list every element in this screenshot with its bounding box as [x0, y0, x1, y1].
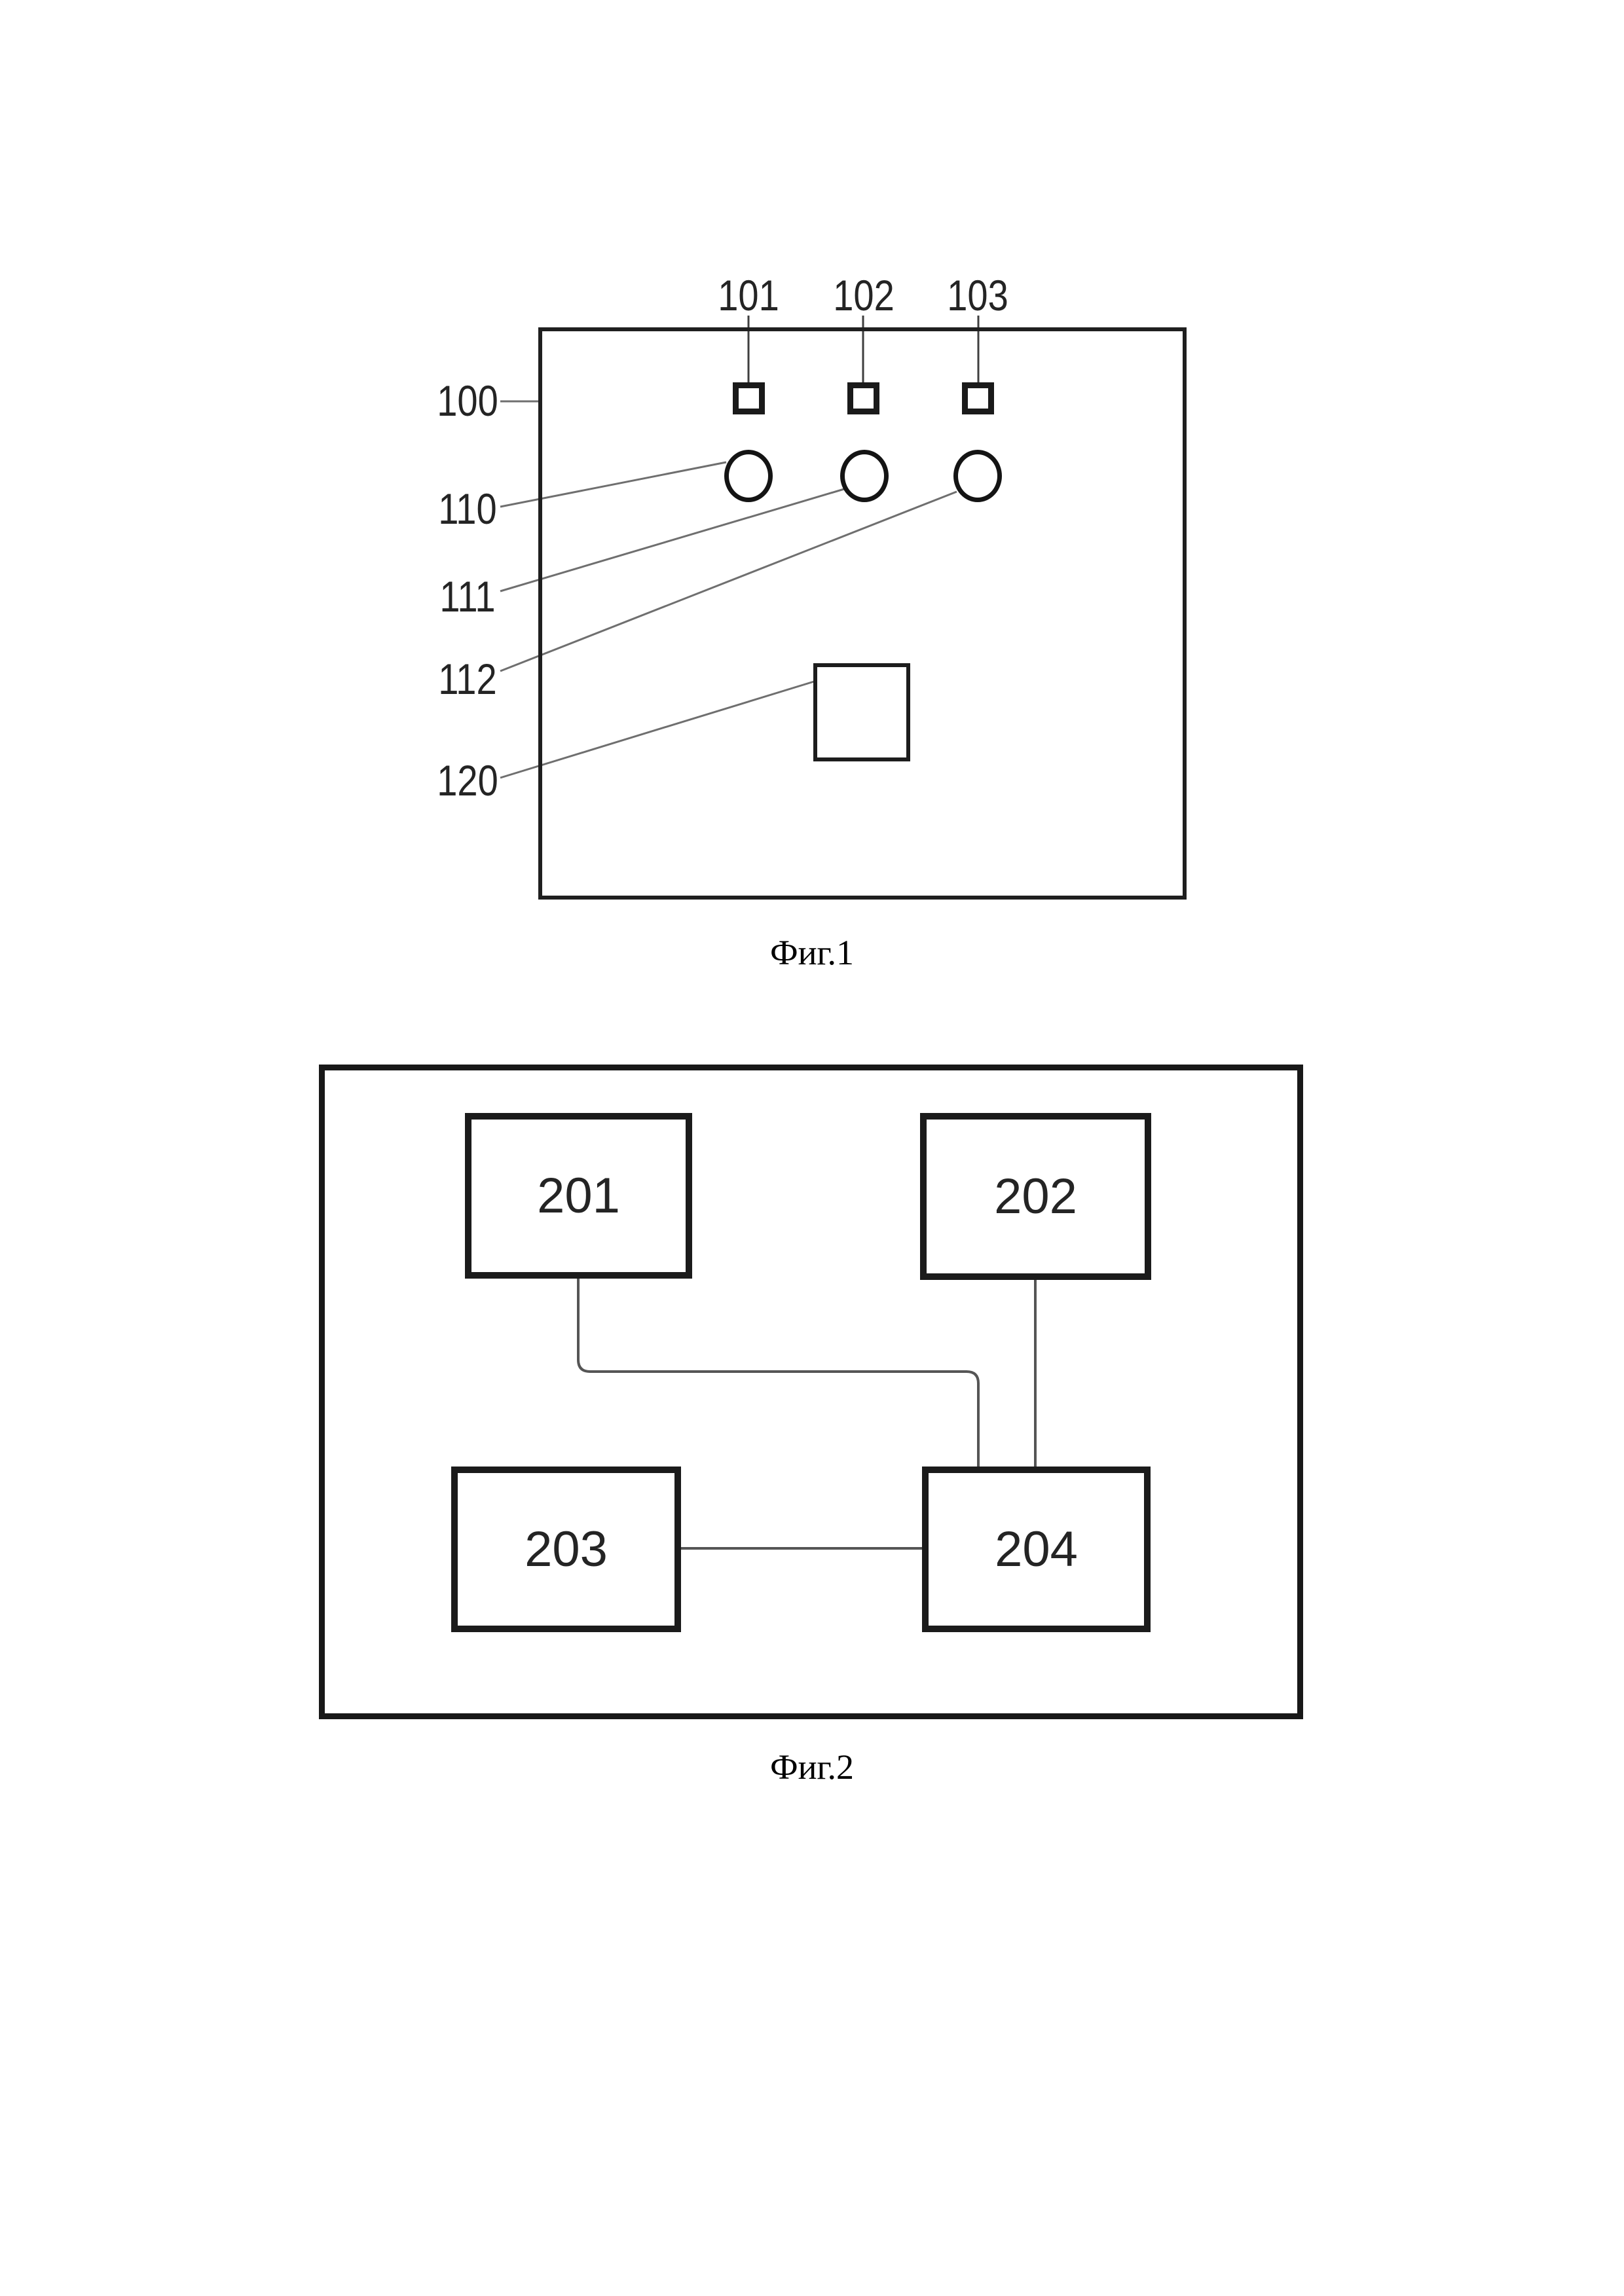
block-203: 203 [451, 1467, 681, 1632]
indicator-circle-111 [840, 450, 889, 502]
ref-label-101: 101 [712, 274, 785, 317]
block-202-label: 202 [994, 1168, 1077, 1225]
module-square-120 [813, 663, 910, 761]
ref-label-111: 111 [432, 575, 504, 618]
block-201: 201 [465, 1113, 692, 1279]
block-204-label: 204 [995, 1521, 1078, 1578]
fig1-caption: Фиг.1 [681, 934, 943, 972]
ref-label-120: 120 [432, 759, 504, 802]
port-square-101 [733, 382, 765, 414]
fig2-caption: Фиг.2 [681, 1748, 943, 1786]
ref-label-103: 103 [942, 274, 1014, 317]
block-202: 202 [920, 1113, 1151, 1280]
block-201-label: 201 [537, 1167, 620, 1224]
indicator-circle-112 [953, 450, 1002, 502]
block-204: 204 [922, 1467, 1151, 1632]
port-square-103 [962, 382, 994, 414]
block-203-label: 203 [525, 1521, 608, 1578]
ref-label-100: 100 [432, 379, 504, 422]
patent-page: { "page": { "background": "#ffffff" }, "… [0, 0, 1624, 2296]
ref-label-112: 112 [432, 657, 504, 701]
port-square-102 [847, 382, 879, 414]
indicator-circle-110 [724, 450, 773, 502]
ref-label-102: 102 [828, 274, 900, 317]
ref-label-110: 110 [432, 487, 504, 530]
